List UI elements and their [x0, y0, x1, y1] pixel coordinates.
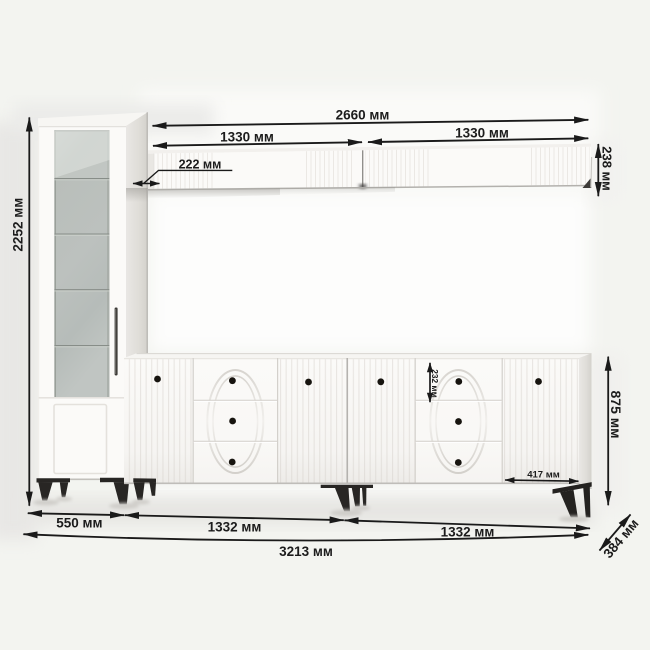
svg-text:417 мм: 417 мм — [527, 470, 560, 481]
svg-text:222 мм: 222 мм — [179, 158, 222, 172]
svg-text:1332 мм: 1332 мм — [441, 524, 495, 539]
svg-text:2252 мм: 2252 мм — [10, 198, 25, 252]
svg-text:1330 мм: 1330 мм — [220, 130, 274, 145]
svg-text:875 мм: 875 мм — [608, 391, 624, 439]
svg-text:2660 мм: 2660 мм — [336, 108, 390, 123]
svg-text:1330 мм: 1330 мм — [455, 126, 509, 141]
svg-text:232 мм: 232 мм — [430, 369, 440, 397]
svg-text:3213 мм: 3213 мм — [279, 544, 333, 559]
svg-text:238 мм: 238 мм — [599, 146, 614, 191]
svg-text:1332 мм: 1332 мм — [208, 519, 262, 534]
svg-text:550 мм: 550 мм — [56, 516, 102, 531]
